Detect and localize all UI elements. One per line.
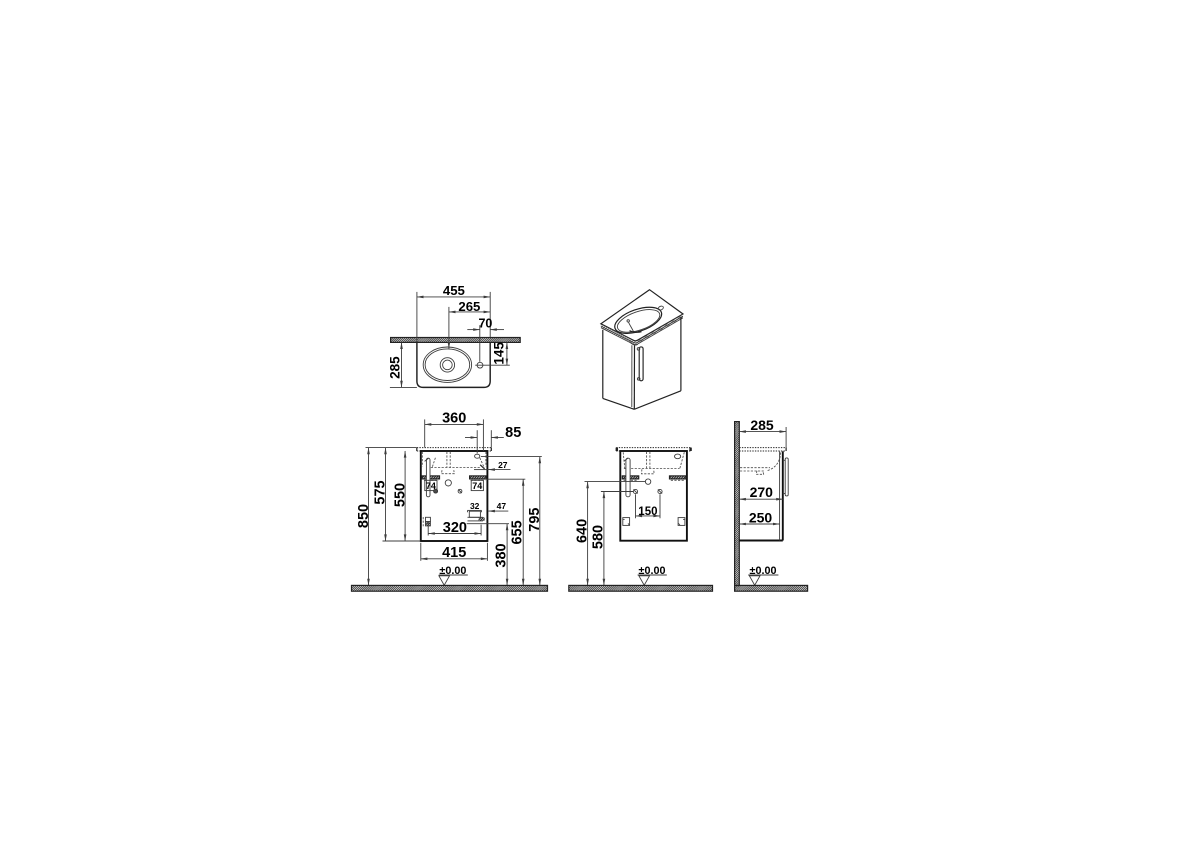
- svg-text:150: 150: [638, 506, 657, 518]
- svg-text:580: 580: [590, 525, 606, 549]
- svg-text:74: 74: [472, 481, 482, 491]
- svg-text:640: 640: [574, 519, 590, 543]
- svg-text:32: 32: [470, 501, 480, 511]
- svg-text:85: 85: [505, 425, 521, 441]
- svg-text:655: 655: [510, 520, 526, 544]
- svg-text:850: 850: [356, 504, 372, 528]
- svg-text:270: 270: [750, 484, 774, 500]
- svg-text:±0.00: ±0.00: [439, 565, 466, 577]
- svg-text:250: 250: [749, 510, 773, 526]
- svg-text:70: 70: [478, 316, 492, 330]
- svg-text:360: 360: [442, 411, 466, 427]
- svg-text:47: 47: [497, 501, 507, 511]
- svg-text:415: 415: [442, 545, 466, 561]
- svg-text:265: 265: [458, 299, 480, 314]
- svg-text:795: 795: [527, 507, 543, 531]
- svg-text:380: 380: [494, 543, 510, 567]
- svg-text:285: 285: [387, 356, 402, 379]
- svg-text:±0.00: ±0.00: [750, 565, 777, 577]
- svg-text:455: 455: [443, 283, 465, 298]
- svg-text:550: 550: [392, 483, 408, 507]
- svg-text:27: 27: [498, 460, 508, 470]
- svg-text:285: 285: [750, 417, 774, 433]
- svg-text:320: 320: [443, 520, 467, 536]
- svg-text:±0.00: ±0.00: [639, 565, 666, 577]
- svg-text:575: 575: [373, 480, 389, 504]
- svg-text:145: 145: [491, 342, 506, 365]
